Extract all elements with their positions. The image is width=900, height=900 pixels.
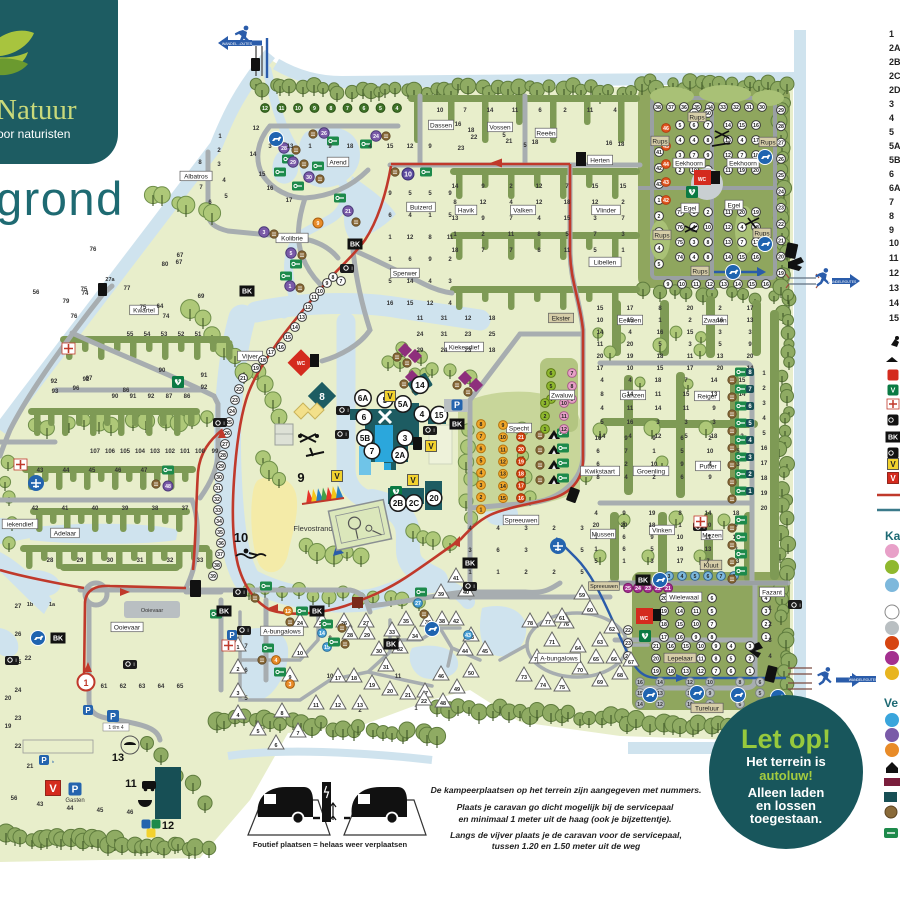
svg-text:11: 11 bbox=[313, 703, 319, 709]
svg-text:16: 16 bbox=[717, 318, 724, 324]
svg-text:43: 43 bbox=[663, 180, 669, 186]
svg-text:61: 61 bbox=[101, 684, 108, 690]
svg-text:42: 42 bbox=[656, 166, 662, 172]
svg-text:24: 24 bbox=[15, 688, 22, 694]
svg-text:75: 75 bbox=[559, 685, 565, 691]
svg-text:11: 11 bbox=[725, 168, 731, 174]
svg-text:14: 14 bbox=[657, 680, 663, 686]
svg-text:13: 13 bbox=[711, 392, 718, 398]
svg-text:5: 5 bbox=[257, 729, 260, 735]
svg-text:24: 24 bbox=[229, 409, 235, 415]
svg-text:30: 30 bbox=[107, 558, 114, 564]
svg-text:11: 11 bbox=[561, 414, 567, 420]
svg-text:23: 23 bbox=[778, 206, 784, 212]
svg-text:4: 4 bbox=[693, 255, 696, 261]
svg-text:9: 9 bbox=[889, 225, 894, 235]
svg-text:90: 90 bbox=[159, 368, 166, 374]
svg-text:7: 7 bbox=[707, 123, 710, 129]
svg-text:64: 64 bbox=[157, 304, 164, 310]
svg-text:5: 5 bbox=[711, 609, 714, 615]
svg-text:4: 4 bbox=[658, 246, 661, 252]
svg-text:56: 56 bbox=[33, 290, 40, 296]
svg-text:14: 14 bbox=[735, 282, 741, 288]
svg-text:Specht: Specht bbox=[509, 425, 529, 432]
svg-text:17: 17 bbox=[268, 350, 274, 356]
svg-text:14: 14 bbox=[655, 406, 662, 412]
svg-text:2: 2 bbox=[480, 495, 483, 501]
svg-text:16: 16 bbox=[278, 345, 284, 351]
svg-text:15: 15 bbox=[435, 411, 444, 420]
svg-text:16: 16 bbox=[267, 186, 274, 192]
svg-text:12: 12 bbox=[536, 200, 543, 206]
svg-text:56: 56 bbox=[11, 796, 18, 802]
svg-text:30: 30 bbox=[376, 649, 382, 655]
svg-text:59: 59 bbox=[579, 593, 585, 599]
svg-text:44: 44 bbox=[67, 806, 74, 812]
svg-text:20: 20 bbox=[653, 656, 659, 662]
svg-text:42: 42 bbox=[663, 198, 669, 204]
svg-text:25: 25 bbox=[625, 586, 631, 592]
svg-text:i: i bbox=[345, 432, 346, 438]
svg-text:77: 77 bbox=[545, 620, 551, 626]
svg-text:Groenling: Groenling bbox=[637, 468, 666, 475]
svg-text:14: 14 bbox=[292, 325, 298, 331]
svg-text:BK: BK bbox=[386, 642, 396, 649]
svg-text:6: 6 bbox=[889, 169, 894, 179]
svg-text:Het terrein is: Het terrein is bbox=[746, 754, 825, 769]
svg-text:3: 3 bbox=[263, 230, 266, 236]
svg-text:17: 17 bbox=[761, 461, 768, 467]
svg-text:6: 6 bbox=[362, 412, 367, 422]
svg-text:10: 10 bbox=[707, 449, 714, 455]
svg-text:76: 76 bbox=[677, 225, 683, 231]
svg-text:20: 20 bbox=[593, 523, 600, 529]
svg-text:Natuur: Natuur bbox=[0, 94, 77, 126]
svg-text:15: 15 bbox=[739, 378, 746, 384]
svg-text:36: 36 bbox=[218, 541, 224, 547]
svg-text:iekendief: iekendief bbox=[7, 521, 33, 528]
svg-text:23: 23 bbox=[645, 586, 651, 592]
svg-text:9: 9 bbox=[326, 281, 329, 287]
svg-text:43: 43 bbox=[37, 468, 44, 474]
svg-text:8: 8 bbox=[319, 392, 325, 403]
svg-text:39: 39 bbox=[122, 506, 129, 512]
svg-text:7: 7 bbox=[370, 446, 375, 456]
svg-text:Rups: Rups bbox=[689, 114, 705, 121]
svg-text:11: 11 bbox=[725, 210, 731, 216]
svg-text:1: 1 bbox=[289, 284, 292, 290]
svg-text:55: 55 bbox=[127, 332, 134, 338]
svg-text:5: 5 bbox=[550, 384, 553, 390]
svg-text:11: 11 bbox=[395, 674, 402, 680]
svg-text:5: 5 bbox=[759, 691, 762, 697]
svg-text:2: 2 bbox=[765, 622, 768, 628]
svg-text:De kampeerplaatsen op het terr: De kampeerplaatsen op het terrein zijn a… bbox=[431, 785, 702, 795]
svg-text:6: 6 bbox=[363, 106, 366, 112]
svg-text:A-bungalows: A-bungalows bbox=[263, 628, 301, 635]
svg-text:19: 19 bbox=[778, 271, 784, 277]
svg-text:12: 12 bbox=[162, 820, 174, 832]
svg-text:62: 62 bbox=[120, 684, 127, 690]
svg-text:4: 4 bbox=[741, 225, 744, 231]
svg-text:P: P bbox=[85, 706, 91, 715]
svg-text:103: 103 bbox=[150, 449, 161, 455]
svg-text:34: 34 bbox=[412, 634, 418, 640]
svg-text:10: 10 bbox=[627, 366, 634, 372]
svg-text:52: 52 bbox=[178, 332, 185, 338]
svg-text:A-bungalows: A-bungalows bbox=[540, 655, 578, 662]
svg-text:27: 27 bbox=[415, 601, 421, 607]
svg-text:101: 101 bbox=[180, 449, 191, 455]
svg-text:33: 33 bbox=[389, 630, 395, 636]
svg-text:45: 45 bbox=[89, 468, 96, 474]
svg-text:8: 8 bbox=[330, 106, 333, 112]
svg-text:7: 7 bbox=[889, 197, 894, 207]
svg-text:14: 14 bbox=[627, 392, 634, 398]
svg-text:28: 28 bbox=[347, 633, 353, 639]
svg-text:BK: BK bbox=[465, 561, 475, 568]
svg-text:39: 39 bbox=[438, 592, 444, 598]
svg-text:5: 5 bbox=[889, 127, 894, 137]
svg-text:Foutief plaatsen = helaas weer: Foutief plaatsen = helaas weer verplaats… bbox=[253, 840, 408, 849]
svg-text:44: 44 bbox=[462, 649, 468, 655]
svg-text:19: 19 bbox=[369, 683, 375, 689]
svg-text:P: P bbox=[110, 711, 116, 721]
svg-text:Ekster: Ekster bbox=[552, 315, 571, 322]
svg-text:12: 12 bbox=[889, 268, 899, 278]
svg-text:10: 10 bbox=[693, 622, 699, 628]
svg-text:7: 7 bbox=[480, 434, 483, 440]
svg-text:64: 64 bbox=[158, 684, 165, 690]
svg-text:19: 19 bbox=[739, 168, 745, 174]
svg-text:18: 18 bbox=[649, 523, 656, 529]
svg-text:34: 34 bbox=[216, 519, 222, 525]
svg-text:26: 26 bbox=[321, 131, 327, 137]
svg-text:5A: 5A bbox=[398, 400, 408, 409]
svg-text:8: 8 bbox=[332, 275, 335, 281]
svg-text:10: 10 bbox=[597, 318, 604, 324]
svg-text:29: 29 bbox=[218, 464, 224, 470]
svg-text:12: 12 bbox=[657, 702, 663, 708]
svg-text:i: i bbox=[243, 590, 244, 596]
svg-text:16: 16 bbox=[761, 446, 768, 452]
svg-text:15: 15 bbox=[564, 216, 571, 222]
svg-text:13: 13 bbox=[717, 354, 724, 360]
svg-text:Zwaluw: Zwaluw bbox=[551, 392, 573, 399]
svg-text:Dassen: Dassen bbox=[430, 122, 452, 129]
svg-text:10: 10 bbox=[679, 282, 685, 288]
svg-text:24: 24 bbox=[778, 189, 784, 195]
svg-text:15: 15 bbox=[889, 313, 899, 323]
svg-text:12: 12 bbox=[725, 225, 731, 231]
svg-text:2: 2 bbox=[707, 210, 710, 216]
svg-text:i: i bbox=[247, 628, 248, 634]
svg-text:62: 62 bbox=[609, 627, 615, 633]
svg-text:12: 12 bbox=[561, 427, 567, 433]
svg-text:78: 78 bbox=[527, 621, 533, 627]
svg-text:5B: 5B bbox=[889, 155, 900, 165]
svg-text:i: i bbox=[799, 603, 800, 609]
svg-text:11: 11 bbox=[587, 108, 594, 114]
svg-text:i: i bbox=[351, 266, 352, 272]
svg-text:11: 11 bbox=[698, 656, 704, 662]
svg-text:WC: WC bbox=[640, 616, 649, 622]
svg-text:41: 41 bbox=[453, 576, 459, 582]
svg-text:13: 13 bbox=[299, 315, 305, 321]
svg-text:33: 33 bbox=[215, 508, 221, 514]
svg-text:20: 20 bbox=[778, 255, 784, 261]
svg-text:Kwikstaart: Kwikstaart bbox=[585, 468, 615, 475]
svg-text:Rups: Rups bbox=[654, 232, 670, 239]
svg-text:30: 30 bbox=[759, 105, 765, 111]
svg-text:1: 1 bbox=[480, 507, 483, 513]
svg-text:79: 79 bbox=[63, 299, 70, 305]
svg-text:7: 7 bbox=[571, 371, 574, 377]
svg-text:3: 3 bbox=[668, 574, 671, 580]
svg-text:16: 16 bbox=[753, 255, 759, 261]
svg-text:15: 15 bbox=[687, 330, 694, 336]
svg-text:14: 14 bbox=[725, 123, 731, 129]
svg-text:14: 14 bbox=[597, 330, 604, 336]
svg-text:24: 24 bbox=[635, 586, 641, 592]
svg-text:15: 15 bbox=[500, 496, 506, 502]
svg-text:3: 3 bbox=[889, 99, 894, 109]
svg-text:16: 16 bbox=[677, 635, 683, 641]
svg-text:29: 29 bbox=[778, 108, 784, 114]
svg-text:3: 3 bbox=[765, 609, 768, 615]
svg-text:14: 14 bbox=[889, 298, 899, 308]
svg-text:4: 4 bbox=[237, 713, 240, 719]
svg-text:6: 6 bbox=[711, 596, 714, 602]
svg-text:76: 76 bbox=[563, 622, 569, 628]
svg-text:30: 30 bbox=[216, 475, 222, 481]
svg-text:18: 18 bbox=[351, 676, 357, 682]
svg-text:18: 18 bbox=[711, 434, 718, 440]
svg-text:19: 19 bbox=[627, 354, 634, 360]
svg-text:50: 50 bbox=[468, 671, 474, 677]
svg-text:4: 4 bbox=[693, 138, 696, 144]
svg-text:35: 35 bbox=[217, 530, 223, 536]
svg-text:3: 3 bbox=[289, 682, 292, 688]
svg-text:80: 80 bbox=[162, 262, 169, 268]
svg-text:69: 69 bbox=[198, 294, 205, 300]
svg-text:23: 23 bbox=[625, 641, 631, 647]
svg-text:21: 21 bbox=[653, 644, 659, 650]
svg-text:6: 6 bbox=[707, 574, 710, 580]
svg-text:17: 17 bbox=[518, 484, 524, 490]
svg-text:87: 87 bbox=[166, 394, 173, 400]
svg-text:6: 6 bbox=[759, 680, 762, 686]
svg-text:BK: BK bbox=[638, 578, 648, 585]
svg-text:10: 10 bbox=[889, 238, 899, 248]
svg-text:Plaats je caravan go dicht mog: Plaats je caravan go dicht mogelijk bij … bbox=[457, 802, 674, 812]
svg-text:100: 100 bbox=[195, 449, 206, 455]
svg-text:5A: 5A bbox=[889, 141, 900, 151]
svg-text:12: 12 bbox=[285, 609, 291, 615]
svg-text:71: 71 bbox=[549, 640, 555, 646]
svg-text:12: 12 bbox=[536, 184, 543, 190]
svg-text:8: 8 bbox=[707, 255, 710, 261]
svg-text:31: 31 bbox=[137, 558, 144, 564]
svg-text:Rups: Rups bbox=[692, 268, 708, 275]
svg-text:17: 17 bbox=[627, 306, 634, 312]
svg-text:37: 37 bbox=[182, 506, 189, 512]
svg-text:2: 2 bbox=[658, 214, 661, 220]
svg-text:12: 12 bbox=[707, 282, 713, 288]
svg-text:3: 3 bbox=[480, 483, 483, 489]
svg-text:96: 96 bbox=[73, 386, 80, 392]
svg-text:20: 20 bbox=[687, 306, 694, 312]
svg-text:15: 15 bbox=[597, 306, 604, 312]
svg-text:68: 68 bbox=[617, 673, 623, 679]
svg-text:28: 28 bbox=[220, 453, 226, 459]
svg-text:14: 14 bbox=[487, 108, 494, 114]
svg-text:21: 21 bbox=[405, 693, 411, 699]
svg-text:15: 15 bbox=[387, 144, 394, 150]
svg-text:5: 5 bbox=[730, 656, 733, 662]
svg-text:15: 15 bbox=[627, 318, 634, 324]
svg-text:29: 29 bbox=[290, 160, 296, 166]
svg-text:19: 19 bbox=[753, 210, 759, 216]
svg-text:6: 6 bbox=[730, 669, 733, 675]
svg-text:16: 16 bbox=[753, 123, 759, 129]
svg-text:2D: 2D bbox=[889, 85, 900, 95]
svg-text:24: 24 bbox=[441, 348, 448, 354]
svg-text:22: 22 bbox=[421, 699, 427, 705]
svg-text:6: 6 bbox=[550, 371, 553, 377]
svg-text:14: 14 bbox=[677, 609, 683, 615]
svg-text:Sperwer: Sperwer bbox=[393, 270, 418, 277]
svg-text:31: 31 bbox=[441, 332, 448, 338]
svg-text:25: 25 bbox=[778, 173, 784, 179]
svg-text:9: 9 bbox=[297, 470, 304, 485]
svg-text:14: 14 bbox=[725, 255, 731, 261]
svg-text:2: 2 bbox=[544, 414, 547, 420]
svg-text:17: 17 bbox=[753, 138, 759, 144]
svg-text:21: 21 bbox=[506, 139, 513, 145]
svg-text:74: 74 bbox=[677, 255, 683, 261]
svg-text:43: 43 bbox=[656, 182, 662, 188]
svg-text:12: 12 bbox=[407, 144, 414, 150]
svg-text:2B: 2B bbox=[889, 57, 900, 67]
svg-text:47: 47 bbox=[141, 468, 148, 474]
svg-text:11: 11 bbox=[508, 232, 515, 238]
svg-text:22: 22 bbox=[236, 387, 242, 393]
svg-text:26: 26 bbox=[778, 157, 784, 163]
svg-text:22: 22 bbox=[625, 628, 631, 634]
svg-text:15: 15 bbox=[739, 255, 745, 261]
svg-text:i: i bbox=[133, 662, 134, 668]
svg-text:2A: 2A bbox=[889, 43, 900, 53]
svg-text:15: 15 bbox=[592, 184, 599, 190]
svg-text:17: 17 bbox=[687, 366, 694, 372]
svg-text:V: V bbox=[387, 392, 393, 401]
svg-text:V: V bbox=[890, 474, 896, 483]
svg-text:14: 14 bbox=[319, 631, 325, 637]
svg-text:104: 104 bbox=[135, 449, 146, 455]
svg-text:10: 10 bbox=[295, 106, 301, 112]
svg-text:4: 4 bbox=[275, 658, 278, 664]
svg-text:67: 67 bbox=[177, 253, 184, 259]
svg-text:Egel: Egel bbox=[727, 202, 741, 209]
svg-text:48: 48 bbox=[440, 701, 446, 707]
svg-text:Adelaar: Adelaar bbox=[54, 530, 77, 537]
svg-text:27: 27 bbox=[15, 604, 22, 610]
svg-text:14: 14 bbox=[407, 279, 414, 285]
svg-text:40: 40 bbox=[92, 506, 99, 512]
svg-text:1: 1 bbox=[544, 427, 547, 433]
svg-text:29: 29 bbox=[364, 633, 370, 639]
svg-text:37: 37 bbox=[668, 105, 674, 111]
svg-text:4: 4 bbox=[681, 574, 684, 580]
svg-text:18: 18 bbox=[564, 200, 571, 206]
svg-text:16: 16 bbox=[455, 122, 462, 128]
svg-text:14: 14 bbox=[500, 484, 506, 490]
svg-text:70: 70 bbox=[577, 668, 583, 674]
svg-text:14: 14 bbox=[452, 184, 459, 190]
svg-text:Vijver: Vijver bbox=[242, 353, 259, 360]
svg-text:8: 8 bbox=[707, 138, 710, 144]
svg-text:4: 4 bbox=[730, 644, 733, 650]
svg-text:15: 15 bbox=[677, 622, 683, 628]
svg-text:18: 18 bbox=[260, 358, 266, 364]
svg-text:autoluw!: autoluw! bbox=[759, 768, 812, 783]
svg-text:Ooievaar: Ooievaar bbox=[114, 624, 141, 631]
svg-text:6A: 6A bbox=[889, 183, 900, 193]
svg-text:10: 10 bbox=[297, 651, 303, 657]
svg-text:11: 11 bbox=[705, 535, 712, 541]
svg-text:Arend: Arend bbox=[329, 159, 347, 166]
svg-text:4: 4 bbox=[741, 138, 744, 144]
svg-text:5: 5 bbox=[480, 459, 483, 465]
svg-text:9: 9 bbox=[502, 423, 505, 429]
svg-text:46: 46 bbox=[663, 126, 669, 132]
svg-text:11: 11 bbox=[417, 316, 424, 322]
svg-text:8: 8 bbox=[480, 422, 483, 428]
svg-text:Fazant: Fazant bbox=[762, 589, 782, 596]
svg-text:38: 38 bbox=[439, 619, 445, 625]
svg-text:V: V bbox=[891, 388, 896, 395]
svg-text:4: 4 bbox=[679, 138, 682, 144]
svg-text:1 t/m 4: 1 t/m 4 bbox=[108, 725, 124, 731]
svg-text:Egel: Egel bbox=[683, 205, 697, 212]
svg-text:Ooievaar: Ooievaar bbox=[141, 608, 163, 614]
svg-text:21: 21 bbox=[345, 209, 351, 215]
svg-text:12: 12 bbox=[253, 126, 260, 132]
svg-text:12: 12 bbox=[687, 680, 693, 686]
svg-text:20: 20 bbox=[717, 366, 724, 372]
svg-text:Flevostrand: Flevostrand bbox=[293, 524, 332, 533]
svg-text:23: 23 bbox=[458, 146, 465, 152]
svg-text:3: 3 bbox=[544, 401, 547, 407]
svg-text:38: 38 bbox=[214, 563, 220, 569]
svg-text:48: 48 bbox=[165, 484, 171, 490]
svg-text:10: 10 bbox=[595, 436, 602, 442]
svg-text:11: 11 bbox=[279, 106, 285, 112]
svg-text:19: 19 bbox=[677, 547, 684, 553]
svg-text:Let op!: Let op! bbox=[741, 724, 831, 754]
svg-text:31: 31 bbox=[441, 316, 448, 322]
svg-text:7: 7 bbox=[711, 622, 714, 628]
svg-text:1: 1 bbox=[658, 198, 661, 204]
svg-text:13: 13 bbox=[889, 283, 899, 293]
svg-text:12: 12 bbox=[698, 669, 704, 675]
svg-text:91: 91 bbox=[201, 373, 208, 379]
svg-text:13: 13 bbox=[747, 318, 754, 324]
svg-text:7: 7 bbox=[340, 279, 343, 285]
svg-text:22: 22 bbox=[778, 222, 784, 228]
svg-text:46: 46 bbox=[127, 810, 134, 816]
